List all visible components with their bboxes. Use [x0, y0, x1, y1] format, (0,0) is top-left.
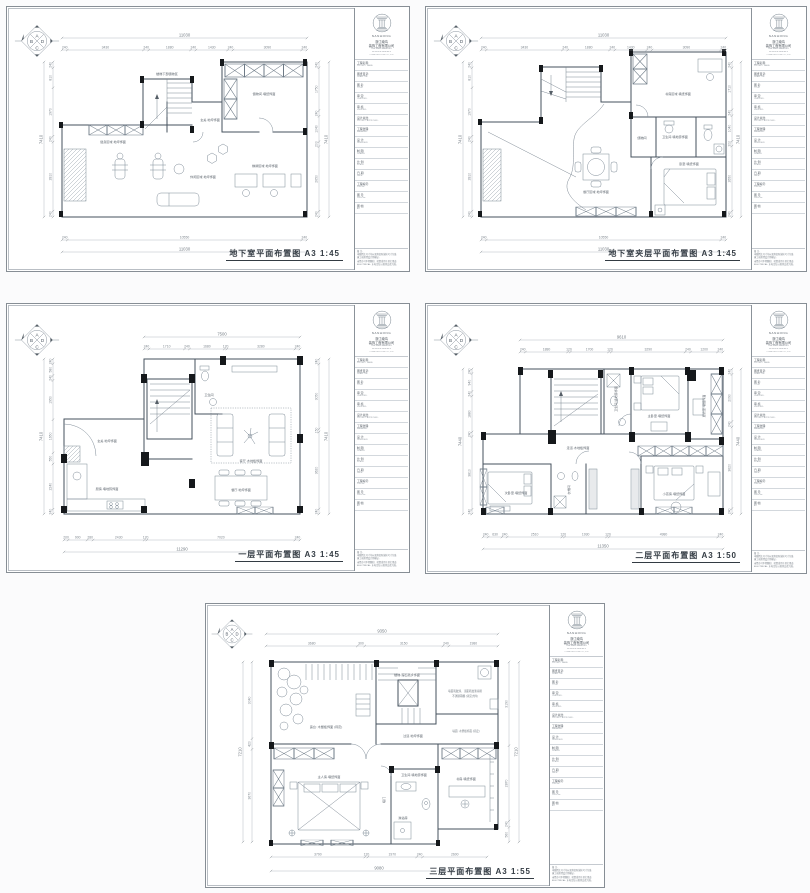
dimension-label: 240	[295, 536, 301, 540]
dimension-label: 1430	[627, 46, 635, 50]
stairs	[554, 379, 598, 426]
room-label: 次卧室·墙纸饰面	[505, 490, 528, 495]
dimension-label: 7410	[323, 431, 328, 441]
room-label: 书房·墙纸饰面	[456, 776, 476, 781]
dimension-label: 240	[468, 136, 472, 142]
title-block-field: 审 核:VERIFIED:	[550, 701, 603, 712]
title-block-field-sublabel: TITLE:	[357, 87, 406, 89]
title-block-field: 审 定:CHECKED:	[752, 93, 805, 104]
title-block-field-sublabel: DRAW. TBL:	[754, 373, 803, 375]
title-block-field-sublabel: PROJECT APPROVED:	[552, 717, 601, 719]
dimension-label: 240	[728, 369, 732, 375]
room-label: 卧室·墙纸饰面	[679, 161, 699, 166]
title-block-field: 工程监理:MANAGER:	[550, 723, 603, 734]
cabinet-hatch	[483, 149, 501, 201]
dimension-label: 240	[184, 345, 190, 349]
walls	[62, 62, 307, 217]
dimension-label: 2240	[49, 483, 53, 491]
dimension-label: 1880	[166, 46, 174, 50]
dimension-label: 1930	[582, 533, 590, 537]
floor-plan-drawing: 主卧室·墙纸饰面 更衣室·墙纸饰面 卫生间·墙地砖饰面 次卧室·墙纸饰面 衣帽间…	[426, 304, 750, 575]
title-block-field-sublabel: DESIGNER:	[357, 142, 406, 144]
room-label: 淋浴房	[398, 815, 407, 820]
dimension-label: 200	[728, 141, 732, 147]
dimension-label: 240	[315, 62, 319, 68]
title-block-field-sublabel: JOB No.:	[754, 483, 803, 485]
title-block-field-sublabel: CHECKED:	[754, 98, 803, 100]
dimension-label: 120	[560, 533, 566, 537]
title-block-notes: 备 注:本图所注尺寸均以现场实际放样尺寸为准,施工前须经设计师确认;未经许可不得…	[752, 550, 805, 572]
title-block-field: 设计总监:PROJECT APPROVED:	[355, 412, 408, 423]
title-block-field: 日 期:DATE:	[752, 467, 805, 478]
title-block-field-sublabel: MANAGER:	[357, 131, 406, 133]
floor-plan-drawing: 客厅·木地板饰面 餐厅·地坪饰面 厨房·墙地砖饰面 卫生间 玄关·地坪饰面 24…	[7, 304, 353, 574]
terrace	[277, 664, 372, 730]
title-block-notes: 备 注:本图所注尺寸均以现场实际放样尺寸为准,施工前须经设计师确认;未经许可不得…	[550, 864, 603, 886]
dimension-label: 2650	[728, 175, 732, 183]
dimension-label: 940	[468, 380, 472, 386]
company-logo: NANHONG	[752, 8, 805, 38]
company-logo: NANHONG	[752, 305, 805, 335]
dimension-label: 240	[502, 533, 508, 537]
dimension-label: 550	[49, 456, 53, 462]
dimension-label: 9080	[374, 865, 384, 870]
title-block-field: 工程名称:PROJECT NAME:	[550, 657, 603, 668]
title-block-field: 工程名称:PROJECT NAME:	[752, 357, 805, 368]
dimension-label: 240	[720, 46, 726, 50]
dimension-label: 120	[566, 348, 572, 352]
dimension-label: 240	[717, 348, 723, 352]
note-label: 墙面乳胶漆、顶面乳胶漆涂刷	[448, 689, 482, 693]
title-block-field: 日 期:DATE:	[752, 170, 805, 181]
title-block-field: 比 例:SCALE:	[752, 456, 805, 467]
title-block-field: 图 号:DWG No.:	[355, 489, 408, 500]
room-label: 卫生间·墙地砖饰面	[613, 386, 618, 412]
dimension-label: 120	[605, 533, 611, 537]
title-block-field-sublabel: MANAGER:	[754, 131, 803, 133]
title-block-field-sublabel: TITLE:	[357, 384, 406, 386]
title-block-field: 图纸目录:DRAW. TBL:	[355, 71, 408, 82]
room-label: 衣帽间	[566, 485, 571, 494]
title-block-field: 日 期:DATE:	[355, 170, 408, 181]
title-block-field: 图纸目录:DRAW. TBL:	[550, 668, 603, 679]
title-block-field-sublabel: MANAGER:	[357, 428, 406, 430]
dimension-label: 3090	[264, 46, 272, 50]
title-block-field: 工程名称:PROJECT NAME:	[752, 60, 805, 71]
dimension-label: 240	[609, 46, 615, 50]
dimension-annotations: 2401880120170012032902401200240961024063…	[457, 334, 742, 550]
title-block-field: 工程监理:MANAGER:	[355, 423, 408, 434]
title-block-field: 图纸目录:DRAW. TBL:	[355, 368, 408, 379]
title-block-field-sublabel: JOB No.:	[552, 783, 601, 785]
dimension-label: 7020	[217, 536, 225, 540]
title-block-field: 图 名:TITLE:	[752, 82, 805, 93]
company-name: 浙江南鸿装饰工程有限公司ZHE JIANG NANHONGINTERIOR DE…	[752, 335, 805, 357]
dimension-label: 240	[62, 46, 68, 50]
room-label: 休闲区域·地坪饰面	[190, 174, 216, 179]
title-block-field-sublabel: VERIFIED:	[552, 706, 601, 708]
room-label: 露台: 木塑板饰面 (待定)	[310, 724, 342, 729]
company-logo: NANHONG	[355, 8, 408, 38]
company-logo: NANHONG	[355, 305, 408, 335]
title-block-field: 图 号:DWG No.:	[752, 192, 805, 203]
sheet-third-floor: 露台: 木塑板饰面 (待定) 楼梯·理石踏步饰面 过道·地坪饰面 主人房·墙纸饰…	[205, 603, 605, 888]
title-block-field-sublabel: DATE:	[552, 772, 601, 774]
title-block-field-sublabel: DESIGNER:	[754, 142, 803, 144]
room-label: 健身区域·地坪饰面	[100, 139, 126, 144]
title-block-field-sublabel: PROJECT NAME:	[754, 65, 803, 67]
title-block: NANHONG浙江南鸿装饰工程有限公司ZHE JIANG NANHONGINTE…	[549, 605, 603, 886]
room-label: 厨房·墙地砖饰面	[96, 486, 119, 491]
title-block-field-sublabel: DRAW. TBL:	[754, 76, 803, 78]
title-block-field-sublabel: DRAWN:	[754, 450, 803, 452]
dimension-label: 240	[720, 236, 726, 240]
dimension-label: 2650	[315, 175, 319, 183]
room-label: 玄关·地坪饰面	[97, 438, 117, 443]
room-label: 储物间·墙纸饰面	[253, 91, 276, 96]
dimension-label: 7210	[513, 747, 518, 757]
title-block-field: 制 图:DRAWN:	[752, 148, 805, 159]
room-labels: 露台: 木塑板饰面 (待定) 楼梯·理石踏步饰面 过道·地坪饰面 主人房·墙纸饰…	[310, 672, 483, 820]
title-block-field-sublabel: DESIGNER:	[552, 739, 601, 741]
dimension-label: 3150	[400, 642, 408, 646]
dimension-label: 810	[468, 75, 472, 81]
dimension-label: 120	[364, 853, 370, 857]
title-block-field: 图 名:TITLE:	[550, 679, 603, 690]
title-block-field: 图 幅:A3	[355, 203, 408, 214]
dimension-label: 7500	[217, 331, 227, 336]
title-block-field: 图 号:DWG No.:	[355, 192, 408, 203]
room-label: 更衣室·墙纸饰面	[701, 395, 706, 418]
dimension-label: 1970	[468, 108, 472, 116]
dimension-label: 2870	[505, 780, 509, 788]
room-label: 餐厅区域·地坪饰面	[583, 189, 609, 194]
title-block-notes: 备 注:本图所注尺寸均以现场实际放样尺寸为准,施工前须经设计师确认;未经许可不得…	[752, 248, 805, 270]
dimension-label: 7410	[457, 134, 462, 144]
room-labels: 客厅·木地板饰面 餐厅·地坪饰面 厨房·墙地砖饰面 卫生间 玄关·地坪饰面	[96, 392, 263, 492]
dimension-label: 240	[443, 642, 449, 646]
company-name: 浙江南鸿装饰工程有限公司ZHE JIANG NANHONGINTERIOR DE…	[355, 38, 408, 60]
title-block-field: 设 计:DESIGNER:	[550, 734, 603, 745]
title-block-field-sublabel: DATE:	[357, 175, 406, 177]
title-block-field-sublabel: SCALE:	[552, 761, 601, 763]
dimension-label: 240	[520, 348, 526, 352]
dimension-label: 1680	[203, 345, 211, 349]
title-block-field: 图 名:TITLE:	[355, 379, 408, 390]
title-block-field-sublabel: SCALE:	[754, 461, 803, 463]
title-block-field: 比 例:SCALE:	[550, 756, 603, 767]
dimension-label: 3790	[314, 853, 322, 857]
title-block-field-sublabel: CHECKED:	[754, 395, 803, 397]
title-block-field: 工程编号:JOB No.:	[752, 181, 805, 192]
dimension-label: 1200	[700, 348, 708, 352]
title-block-field-sublabel: SCALE:	[357, 164, 406, 166]
furniture	[112, 118, 301, 206]
room-label: 走道·木地板饰面	[567, 445, 590, 450]
stairs	[541, 67, 601, 102]
dimension-label: 3620	[315, 467, 319, 475]
dimension-label: 11030	[598, 32, 610, 37]
closet-hatch	[64, 446, 273, 514]
dimension-label: 1700	[586, 348, 594, 352]
company-logo: NANHONG	[550, 605, 603, 635]
title-block: NANHONG浙江南鸿装饰工程有限公司ZHE JIANG NANHONGINTE…	[751, 305, 805, 572]
dimension-label: 7410	[38, 134, 43, 144]
dimension-annotations: 2401710240168012032802407500200900280243…	[38, 331, 330, 553]
note-label: 墙面: 木塑板饰面 (待定)	[452, 729, 479, 733]
title-block-field: 制 图:DRAWN:	[550, 745, 603, 756]
title-block-field: 图 号:DWG No.:	[752, 489, 805, 500]
title-block-field-sublabel: TITLE:	[552, 684, 601, 686]
dimension-label: 240	[718, 533, 724, 537]
dimension-label: 1650	[49, 432, 53, 440]
dimension-label: 300	[358, 642, 364, 646]
sheet-basement-mezzanine: 书房区域·墙纸饰面 卫生间·墙地砖饰面 储物间 餐厅区域·地坪饰面 卧室·墙纸饰…	[425, 6, 807, 272]
sheet-first-floor: 客厅·木地板饰面 餐厅·地坪饰面 厨房·墙地砖饰面 卫生间 玄关·地坪饰面 24…	[6, 303, 410, 573]
title-block-field-sublabel: A3	[552, 805, 601, 807]
dimension-annotations: 2403430240188024014302403090240110302401…	[38, 32, 330, 253]
dimension-label: 240	[144, 345, 150, 349]
title-block-field-sublabel: PROJECT NAME:	[754, 362, 803, 364]
dimension-label: 240	[49, 375, 53, 381]
title-block-field: 工程监理:MANAGER:	[752, 423, 805, 434]
dimension-label: 3280	[257, 345, 265, 349]
title-block-field-sublabel: TITLE:	[754, 87, 803, 89]
dimension-label: 3430	[521, 46, 529, 50]
drawing-set-canvas: 楼梯下部储物区 健身区域·地坪饰面 休闲区域·地坪饰面 棋牌区域·地坪饰面 储物…	[0, 0, 810, 893]
title-block-field-sublabel: CHECKED:	[357, 98, 406, 100]
title-block-field-sublabel: PROJECT APPROVED:	[357, 417, 406, 419]
title-block-field: 设计总监:PROJECT APPROVED:	[550, 712, 603, 723]
title-block-field: 比 例:SCALE:	[355, 159, 408, 170]
room-label: 卫生间·墙地砖饰面	[662, 134, 688, 139]
dimension-label: 240	[468, 509, 472, 515]
company-name: 浙江南鸿装饰工程有限公司ZHE JIANG NANHONGINTERIOR DE…	[355, 335, 408, 357]
room-label: 储物间	[637, 135, 646, 140]
dimension-label: 240	[505, 821, 509, 827]
dimension-label: 7410	[323, 134, 328, 144]
title-block-field: 日 期:DATE:	[550, 767, 603, 778]
room-label: 玄关·地坪饰面	[200, 117, 220, 122]
title-block-field-sublabel: MANAGER:	[754, 428, 803, 430]
title-block-field-sublabel: JOB No.:	[754, 186, 803, 188]
title-block-field: 设 计:DESIGNER:	[752, 434, 805, 445]
dimension-label: 240	[728, 62, 732, 68]
dimension-label: 2600	[451, 853, 459, 857]
title-block-field-sublabel: DESIGNER:	[754, 439, 803, 441]
dimension-label: 240	[190, 46, 196, 50]
title-block-field: 设计总监:PROJECT APPROVED:	[752, 115, 805, 126]
title-block-field-sublabel: PROJECT APPROVED:	[754, 120, 803, 122]
dimension-label: 240	[481, 236, 487, 240]
dimension-label: 3430	[102, 46, 110, 50]
dimension-label: 120	[223, 345, 229, 349]
dimension-label: 2090	[728, 394, 732, 402]
title-block-field-sublabel: DWG No.:	[552, 794, 601, 796]
title-block-field: 图 幅:A3	[752, 203, 805, 214]
title-block-notes: 备 注:本图所注尺寸均以现场实际放样尺寸为准,施工前须经设计师确认;未经许可不得…	[355, 549, 408, 571]
title-block-field: 工程编号:JOB No.:	[355, 181, 408, 192]
dimension-label: 240	[728, 110, 732, 116]
title-block-field-sublabel: MANAGER:	[552, 728, 601, 730]
title-block-field-sublabel: DRAW. TBL:	[357, 373, 406, 375]
sheet-basement: 楼梯下部储物区 健身区域·地坪饰面 休闲区域·地坪饰面 棋牌区域·地坪饰面 储物…	[6, 6, 410, 272]
dimension-label: 240	[315, 110, 319, 116]
note-label: 不锈钢雨棚 (详见大样)	[452, 694, 478, 698]
dimension-label: 240	[728, 421, 732, 427]
title-block-field: 工程监理:MANAGER:	[752, 126, 805, 137]
floor-plan-drawing: 书房区域·墙纸饰面 卫生间·墙地砖饰面 储物间 餐厅区域·地坪饰面 卧室·墙纸饰…	[426, 7, 750, 273]
dimension-label: 1880	[585, 46, 593, 50]
dimension-label: 240	[49, 62, 53, 68]
dimension-label: 240	[468, 368, 472, 374]
dimension-label: 1880	[468, 410, 472, 418]
sheet-title: 地下室平面布置图 A3 1:45	[226, 248, 343, 261]
room-label: 楼梯下部储物区	[156, 71, 178, 76]
title-block-field: 审 定:CHECKED:	[355, 93, 408, 104]
dimension-label: 7410	[38, 431, 43, 441]
dimension-label: 3050	[315, 393, 319, 401]
title-block-field-sublabel: JOB No.:	[357, 186, 406, 188]
dimension-label: 240	[468, 211, 472, 217]
title-block-field: 工程名称:PROJECT NAME:	[355, 60, 408, 71]
title-block-field: 图 名:TITLE:	[752, 379, 805, 390]
dimension-label: 240	[647, 46, 653, 50]
dimension-label: 120	[143, 536, 149, 540]
room-label: 客厅·木地板饰面	[240, 458, 263, 463]
dimension-label: 1880	[543, 348, 551, 352]
title-block-field: 工程编号:JOB No.:	[752, 478, 805, 489]
dimension-label: 1970	[389, 853, 397, 857]
title-block-field: 工程名称:PROJECT NAME:	[355, 357, 408, 368]
title-block-field-sublabel: VERIFIED:	[357, 406, 406, 408]
dimension-label: 120	[607, 348, 613, 352]
dimension-label: 240	[468, 431, 472, 437]
dimension-label: 240	[143, 46, 149, 50]
title-block-field-sublabel: DWG No.:	[357, 494, 406, 496]
title-block-field-sublabel: SCALE:	[357, 461, 406, 463]
room-label: 主卧室·墙纸饰面	[648, 413, 671, 418]
dimension-label: 240	[728, 508, 732, 514]
title-block-field: 审 定:CHECKED:	[550, 690, 603, 701]
title-block: NANHONG浙江南鸿装饰工程有限公司ZHE JIANG NANHONGINTE…	[751, 8, 805, 270]
dimension-label: 1040	[728, 125, 732, 133]
dimension-label: 4980	[660, 533, 668, 537]
dimension-label: 240	[301, 46, 307, 50]
dimension-label: 3810	[468, 469, 472, 477]
room-label: 楼梯·理石踏步饰面	[394, 672, 420, 677]
dimension-label: 11350	[597, 543, 609, 548]
dimension-label: 420	[248, 741, 252, 747]
room-label: 暗门	[381, 797, 386, 803]
room-label: 主人房·墙纸饰面	[318, 774, 341, 779]
room-label: 小孩房·墙纸饰面	[663, 491, 686, 496]
title-block-field: 审 核:VERIFIED:	[752, 401, 805, 412]
dimension-label: 200	[63, 536, 69, 540]
room-label: 过道·地坪饰面	[403, 733, 423, 738]
title-block-field: 设计总监:PROJECT APPROVED:	[355, 115, 408, 126]
title-block-field: 图 幅:A3	[752, 500, 805, 511]
dimension-label: 7440	[457, 436, 462, 446]
sheet-title: 二层平面布置图 A3 1:50	[632, 550, 740, 563]
dimension-label: 240	[49, 136, 53, 142]
dimension-label: 810	[49, 75, 53, 81]
title-block-field-sublabel: A3	[357, 208, 406, 210]
title-block-field: 图 幅:A3	[355, 500, 408, 511]
title-block-field-sublabel: DRAWN:	[552, 750, 601, 752]
dimension-label: 580	[49, 367, 53, 373]
room-label: 卫生间	[204, 392, 213, 397]
dimension-label: 7210	[237, 747, 242, 757]
title-block-field-sublabel: DWG No.:	[357, 197, 406, 199]
company-name: 浙江南鸿装饰工程有限公司ZHE JIANG NANHONGINTERIOR DE…	[752, 38, 805, 60]
room-labels: 书房区域·墙纸饰面 卫生间·墙地砖饰面 储物间 餐厅区域·地坪饰面 卧室·墙纸饰…	[583, 91, 699, 194]
room-label: 书房区域·墙纸饰面	[665, 91, 691, 96]
dimension-label: 240	[295, 345, 301, 349]
dimension-label: 3290	[645, 348, 653, 352]
sheet-title: 一层平面布置图 A3 1:45	[235, 549, 343, 562]
title-block-field-sublabel: VERIFIED:	[754, 406, 803, 408]
dimension-label: 240	[483, 533, 489, 537]
title-block-field-sublabel: DESIGNER:	[357, 439, 406, 441]
room-label: 餐厅·地坪饰面	[231, 487, 251, 492]
title-block-field-sublabel: A3	[754, 208, 803, 210]
title-block-field-sublabel: CHECKED:	[552, 695, 601, 697]
title-block: NANHONG浙江南鸿装饰工程有限公司ZHE JIANG NANHONGINTE…	[354, 8, 408, 270]
dimension-label: 240	[468, 62, 472, 68]
title-block-field: 制 图:DRAWN:	[355, 148, 408, 159]
title-block-field-sublabel: DRAW. TBL:	[357, 76, 406, 78]
title-block-field-sublabel: DRAWN:	[754, 153, 803, 155]
title-block-field: 图纸目录:DRAW. TBL:	[752, 71, 805, 82]
dimension-label: 240	[49, 509, 53, 515]
title-block-field-sublabel: DWG No.:	[754, 197, 803, 199]
dimension-label: 11290	[176, 546, 188, 551]
dimension-label: 10550	[599, 236, 609, 240]
dimension-label: 11030	[179, 32, 191, 37]
title-block-field-sublabel: DRAWN:	[357, 450, 406, 452]
dimension-label: 630	[492, 533, 498, 537]
dimension-label: 240	[49, 358, 53, 364]
dimension-label: 3620	[728, 464, 732, 472]
dimension-label: 1710	[728, 85, 732, 93]
title-block-field-sublabel: DATE:	[754, 175, 803, 177]
dimension-label: 7410	[735, 134, 740, 144]
title-block-field-sublabel: CHECKED:	[357, 395, 406, 397]
cabinet-hatch	[64, 149, 86, 201]
title-block-field: 设 计:DESIGNER:	[355, 137, 408, 148]
title-block-field: 工程监理:MANAGER:	[355, 126, 408, 137]
floor-plan-drawing: 露台: 木塑板饰面 (待定) 楼梯·理石踏步饰面 过道·地坪饰面 主人房·墙纸饰…	[206, 604, 548, 889]
title-block-field: 审 核:VERIFIED:	[752, 104, 805, 115]
dimension-label: 240	[49, 211, 53, 217]
dimension-label: 1710	[163, 345, 171, 349]
dimension-label: 7440	[735, 436, 740, 446]
title-block-field-sublabel: PROJECT NAME:	[357, 362, 406, 364]
dimension-label: 240	[62, 236, 68, 240]
dimension-label: 900	[75, 536, 81, 540]
stairs	[150, 384, 190, 432]
dimension-label: 3680	[308, 642, 316, 646]
title-block-field: 设 计:DESIGNER:	[355, 434, 408, 445]
title-block-field-sublabel: PROJECT APPROVED:	[357, 120, 406, 122]
room-label: 卫生间·墙地砖饰面	[401, 772, 427, 777]
title-block-field: 图纸目录:DRAW. TBL:	[752, 368, 805, 379]
dimension-label: 10550	[180, 236, 190, 240]
title-block-field-sublabel: JOB No.:	[357, 483, 406, 485]
dimension-label: 560	[505, 832, 509, 838]
dimension-label: 240	[315, 509, 319, 515]
